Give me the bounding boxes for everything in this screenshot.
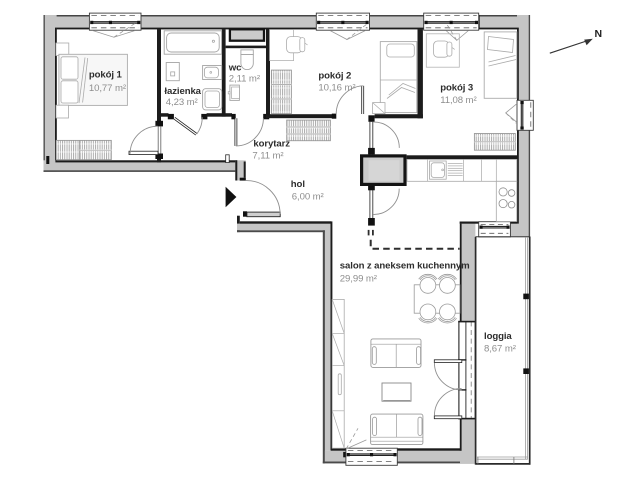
svg-text:pokój 1: pokój 1 bbox=[89, 70, 123, 81]
svg-text:korytarz: korytarz bbox=[253, 139, 290, 150]
svg-text:8,67 m²: 8,67 m² bbox=[484, 344, 517, 355]
svg-text:2,11 m²: 2,11 m² bbox=[229, 74, 261, 85]
svg-text:10,16 m²: 10,16 m² bbox=[318, 82, 356, 93]
svg-text:pokój 3: pokój 3 bbox=[440, 83, 473, 94]
svg-text:pokój 2: pokój 2 bbox=[318, 70, 351, 81]
svg-text:wc: wc bbox=[228, 63, 242, 74]
svg-text:łazienka: łazienka bbox=[164, 86, 201, 97]
svg-text:7,11 m²: 7,11 m² bbox=[252, 151, 284, 162]
svg-text:4,23 m²: 4,23 m² bbox=[166, 97, 199, 108]
svg-text:29,99 m²: 29,99 m² bbox=[340, 274, 378, 285]
svg-text:6,00 m²: 6,00 m² bbox=[292, 191, 325, 202]
svg-text:10,77 m²: 10,77 m² bbox=[89, 83, 127, 94]
svg-text:loggia: loggia bbox=[484, 331, 512, 342]
svg-text:N: N bbox=[595, 28, 603, 40]
svg-text:11,08 m²: 11,08 m² bbox=[440, 95, 477, 106]
svg-text:hol: hol bbox=[291, 179, 305, 190]
svg-text:salon z aneksem kuchennym: salon z aneksem kuchennym bbox=[340, 260, 470, 271]
